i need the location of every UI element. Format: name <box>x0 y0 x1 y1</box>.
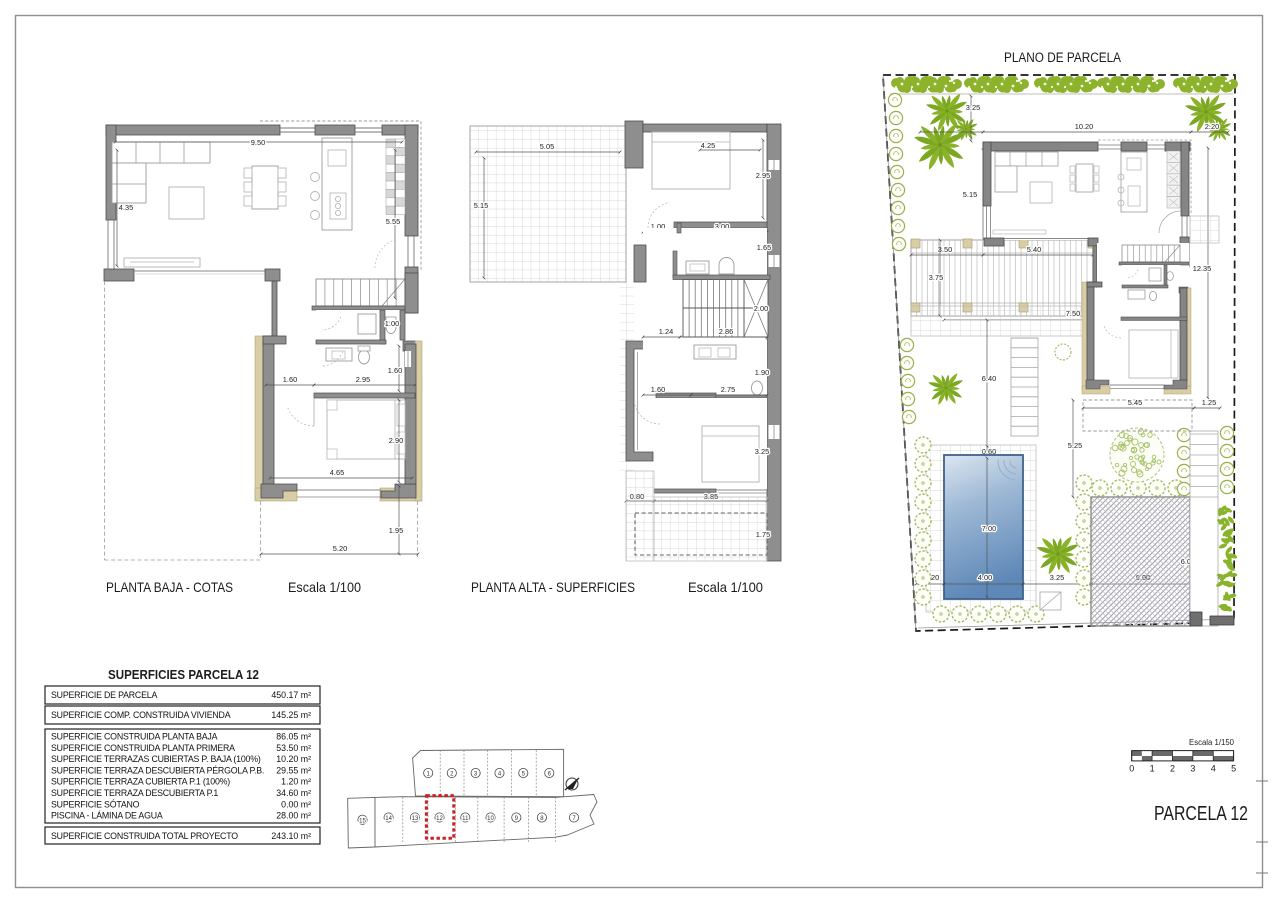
svg-text:0.00 m²: 0.00 m² <box>281 799 311 809</box>
svg-text:6.40: 6.40 <box>982 374 996 383</box>
svg-text:3.25: 3.25 <box>1050 573 1064 582</box>
svg-text:4.65: 4.65 <box>330 468 344 477</box>
svg-text:SUPERFICIE DE PARCELA: SUPERFICIE DE PARCELA <box>51 690 157 700</box>
svg-text:2.86: 2.86 <box>719 327 733 336</box>
svg-text:1.25: 1.25 <box>1202 398 1216 407</box>
svg-text:29.55 m²: 29.55 m² <box>276 765 311 775</box>
svg-text:PLANO DE PARCELA: PLANO DE PARCELA <box>1004 50 1121 65</box>
svg-text:5.05: 5.05 <box>540 142 554 151</box>
svg-text:86.05 m²: 86.05 m² <box>276 732 311 742</box>
svg-text:SUPERFICIE SÓTANO: SUPERFICIE SÓTANO <box>51 799 140 809</box>
svg-text:PISCINA - LÁMINA DE AGUA: PISCINA - LÁMINA DE AGUA <box>51 811 163 821</box>
svg-text:145.25 m²: 145.25 m² <box>271 710 311 720</box>
svg-text:5.15: 5.15 <box>474 201 488 210</box>
svg-text:5.25: 5.25 <box>1068 441 1082 450</box>
svg-text:3.75: 3.75 <box>929 273 943 282</box>
svg-text:10.20 m²: 10.20 m² <box>276 754 311 764</box>
svg-text:SUPERFICIES PARCELA 12: SUPERFICIES PARCELA 12 <box>108 667 259 682</box>
svg-text:PLANTA ALTA - SUPERFICIES: PLANTA ALTA - SUPERFICIES <box>471 579 635 595</box>
svg-text:5.45: 5.45 <box>1128 398 1142 407</box>
svg-text:1: 1 <box>1150 764 1155 774</box>
svg-text:1.60: 1.60 <box>283 375 297 384</box>
svg-text:SUPERFICIE CONSTRUIDA PLANTA P: SUPERFICIE CONSTRUIDA PLANTA PRIMERA <box>51 743 235 753</box>
svg-text:2.75: 2.75 <box>721 385 735 394</box>
svg-text:1.95: 1.95 <box>389 526 403 535</box>
svg-text:4.00: 4.00 <box>978 573 992 582</box>
svg-text:SUPERFICIE TERRAZA DESCUBIERTA: SUPERFICIE TERRAZA DESCUBIERTA P.1 <box>51 788 218 798</box>
svg-text:2.95: 2.95 <box>356 375 370 384</box>
svg-text:53.50 m²: 53.50 m² <box>276 743 311 753</box>
svg-text:11: 11 <box>462 816 469 822</box>
svg-text:3: 3 <box>1190 764 1195 774</box>
svg-text:4.25: 4.25 <box>701 141 715 150</box>
svg-text:5.55: 5.55 <box>386 217 400 226</box>
svg-text:SUPERFICIE TERRAZA DESCUBIERTA: SUPERFICIE TERRAZA DESCUBIERTA PÉRGOLA P… <box>51 765 264 775</box>
svg-text:1.65: 1.65 <box>757 243 771 252</box>
svg-text:2.95: 2.95 <box>756 171 770 180</box>
svg-text:Escala 1/100: Escala 1/100 <box>688 579 763 595</box>
svg-text:1.75: 1.75 <box>756 530 770 539</box>
svg-text:5: 5 <box>1231 764 1236 774</box>
svg-text:2.20: 2.20 <box>1205 122 1219 131</box>
svg-text:5.20: 5.20 <box>333 544 347 553</box>
svg-text:9.50: 9.50 <box>251 138 265 147</box>
svg-text:12: 12 <box>436 816 443 822</box>
svg-text:3.25: 3.25 <box>755 447 769 456</box>
svg-text:SUPERFICIE CONSTRUIDA PLANTA B: SUPERFICIE CONSTRUIDA PLANTA BAJA <box>51 732 218 742</box>
svg-text:SUPERFICIE TERRAZAS CUBIERTAS: SUPERFICIE TERRAZAS CUBIERTAS P. BAJA (1… <box>51 754 261 764</box>
svg-text:4: 4 <box>1211 764 1216 774</box>
svg-text:34.60 m²: 34.60 m² <box>276 788 311 798</box>
svg-text:SUPERFICIE TERRAZA CUBIERTA P.: SUPERFICIE TERRAZA CUBIERTA P.1 (100%) <box>51 777 230 787</box>
svg-text:243.10 m²: 243.10 m² <box>271 831 311 841</box>
svg-text:450.17 m²: 450.17 m² <box>271 690 311 700</box>
svg-text:SUPERFICIE COMP. CONSTRUIDA VI: SUPERFICIE COMP. CONSTRUIDA VIVIENDA <box>51 710 231 720</box>
svg-text:1.24: 1.24 <box>659 327 673 336</box>
svg-text:2.00: 2.00 <box>754 304 768 313</box>
svg-text:5.40: 5.40 <box>1027 245 1041 254</box>
svg-text:5.15: 5.15 <box>963 190 977 199</box>
svg-text:2.90: 2.90 <box>389 436 403 445</box>
svg-text:10: 10 <box>487 816 494 822</box>
svg-text:SUPERFICIE CONSTRUIDA TOTAL PR: SUPERFICIE CONSTRUIDA TOTAL PROYECTO <box>51 831 238 841</box>
svg-text:1.20 m²: 1.20 m² <box>281 777 311 787</box>
svg-text:10.20: 10.20 <box>1075 122 1094 131</box>
svg-text:1.60: 1.60 <box>651 385 665 394</box>
svg-text:Escala 1/150: Escala 1/150 <box>1189 738 1235 747</box>
svg-text:1.60: 1.60 <box>388 366 402 375</box>
svg-text:2: 2 <box>1170 764 1175 774</box>
svg-text:7.00: 7.00 <box>982 524 996 533</box>
svg-text:14: 14 <box>385 816 392 822</box>
svg-text:1.00: 1.00 <box>385 319 399 328</box>
svg-text:12.35: 12.35 <box>1193 264 1212 273</box>
svg-text:4.35: 4.35 <box>119 203 133 212</box>
svg-text:15: 15 <box>359 818 366 824</box>
svg-text:3.25: 3.25 <box>966 103 980 112</box>
svg-text:PARCELA 12: PARCELA 12 <box>1154 803 1248 825</box>
svg-text:PLANTA BAJA - COTAS: PLANTA BAJA - COTAS <box>106 579 233 595</box>
svg-text:13: 13 <box>412 816 419 822</box>
svg-text:28.00 m²: 28.00 m² <box>276 811 311 821</box>
svg-text:Escala 1/100: Escala 1/100 <box>288 579 361 595</box>
svg-text:1.90: 1.90 <box>755 368 769 377</box>
svg-text:0: 0 <box>1129 764 1134 774</box>
